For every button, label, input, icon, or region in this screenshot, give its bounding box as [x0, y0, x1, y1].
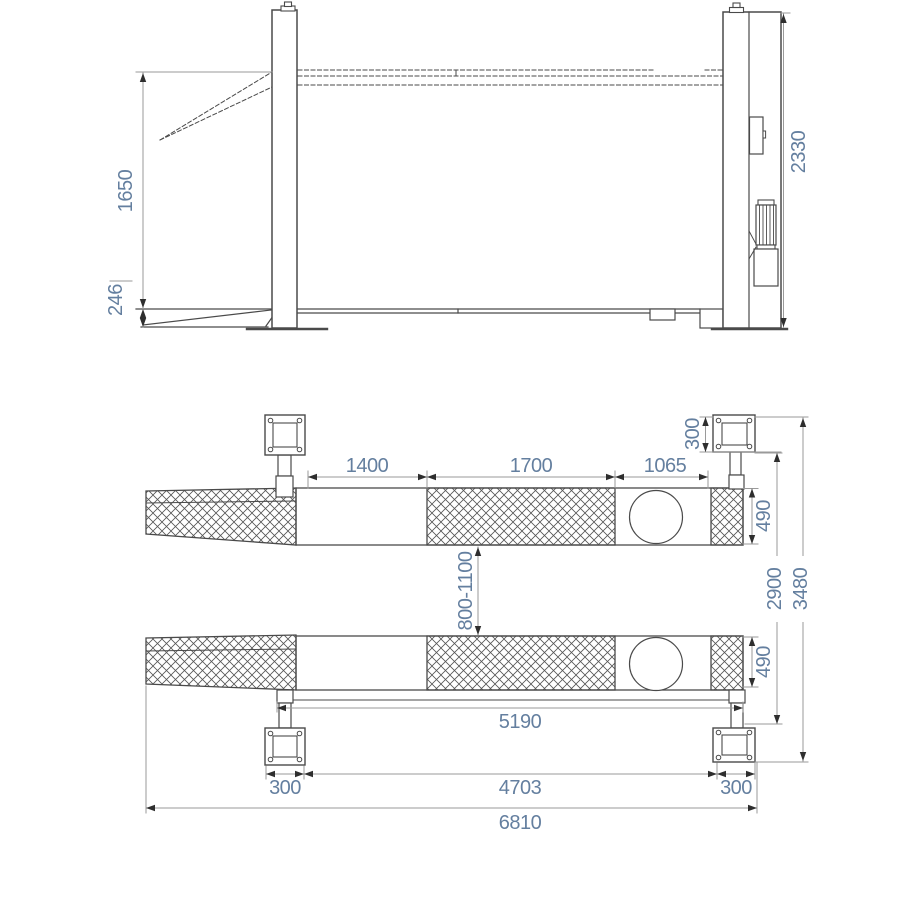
dim-490-bottom: 490	[743, 637, 775, 687]
dim-label-gap: 800-1100	[455, 551, 477, 630]
dim-2330: 2330	[780, 13, 810, 327]
dim-label-2900: 2900	[764, 567, 786, 610]
top-runway	[146, 488, 743, 545]
raised-platform-dashed-lines	[160, 70, 722, 140]
dim-label-4703: 4703	[499, 777, 542, 799]
post-bottom-left	[265, 690, 305, 765]
bottom-runway-hatch-end	[711, 636, 743, 690]
dim-label-1065: 1065	[644, 455, 687, 477]
dim-label-490-bottom: 490	[753, 646, 775, 678]
bottom-runway	[146, 635, 743, 691]
side-view: 1650 246 2330	[105, 2, 810, 329]
dim-label-2330: 2330	[788, 130, 810, 173]
dim-label-5190: 5190	[499, 711, 542, 733]
dim-label-300-top: 300	[682, 418, 704, 450]
dim-label-3480: 3480	[790, 567, 812, 610]
control-box	[750, 117, 766, 154]
dim-gap: 800-1100	[455, 547, 481, 635]
dim-label-1400: 1400	[346, 455, 389, 477]
top-ramp	[146, 488, 296, 545]
dim-label-300-right: 300	[720, 777, 752, 799]
dim-label-246: 246	[105, 284, 127, 316]
drive-on-ramp-side	[141, 309, 278, 327]
technical-drawing: 1650 246 2330	[0, 0, 924, 924]
bottom-ramp	[146, 635, 296, 690]
post-bottom-right	[713, 690, 755, 762]
dim-label-1650: 1650	[115, 169, 137, 212]
lowered-platform	[136, 309, 723, 328]
bottom-turnplate	[630, 638, 683, 691]
motor	[756, 200, 776, 249]
dim-label-6810: 6810	[499, 812, 542, 834]
dim-label-300-left: 300	[269, 777, 301, 799]
plan-view: 1400 1700 1065 300 490 800-1100	[146, 415, 812, 834]
top-runway-hatch-end	[711, 488, 743, 545]
dim-chain-bottom: 300 4703 300	[266, 763, 755, 799]
dim-490-top: 490	[743, 489, 775, 545]
dim-246: 246	[105, 281, 146, 327]
post-top-left	[265, 415, 305, 497]
dim-label-1700: 1700	[510, 455, 553, 477]
dim-chain-top: 1400 1700 1065	[308, 455, 708, 488]
dim-1650: 1650	[115, 72, 272, 308]
dim-label-490-top: 490	[753, 500, 775, 532]
top-runway-hatch-mid	[427, 488, 615, 545]
left-column	[272, 2, 297, 328]
bottom-runway-hatch-mid	[427, 636, 615, 690]
dim-5190: 5190	[277, 702, 743, 733]
lift-dimension-diagram: 1650 246 2330	[0, 0, 924, 924]
top-turnplate	[630, 491, 683, 544]
right-column	[723, 3, 781, 328]
